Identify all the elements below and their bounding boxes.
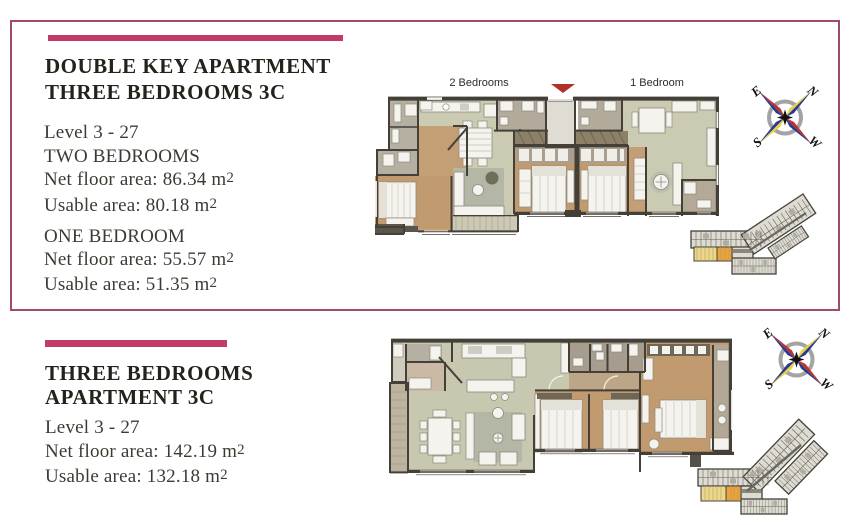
svg-text:1 Bedroom: 1 Bedroom xyxy=(630,77,684,89)
svg-text:W: W xyxy=(806,133,826,153)
svg-text:E: E xyxy=(747,82,764,100)
svg-text:2 Bedrooms: 2 Bedrooms xyxy=(449,77,509,89)
svg-text:S: S xyxy=(750,134,765,150)
